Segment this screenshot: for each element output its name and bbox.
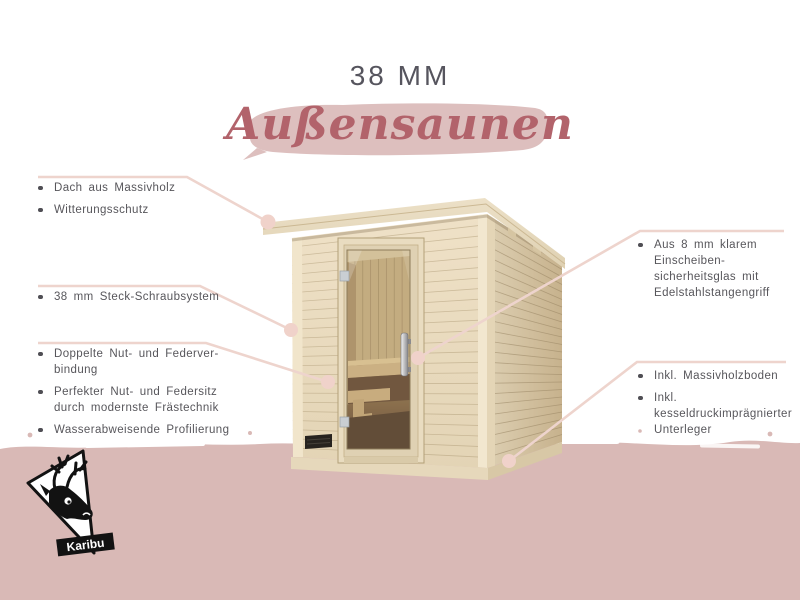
feature-item: Witterungsschutz bbox=[36, 202, 256, 218]
feature-group-joints: Doppelte Nut- und Federver- bindung Perf… bbox=[36, 346, 266, 444]
feature-item: Wasserabweisende Profilierung bbox=[36, 422, 266, 438]
callout-dot bbox=[261, 215, 276, 230]
feature-item: Doppelte Nut- und Federver- bindung bbox=[36, 346, 266, 378]
feature-list: Aus 8 mm klarem Einscheiben- sicherheits… bbox=[636, 237, 796, 301]
feature-group-system: 38 mm Steck-Schraubsystem bbox=[36, 289, 266, 311]
product-title: Außensaunen bbox=[0, 99, 800, 150]
karibu-logo: Karibu bbox=[15, 445, 125, 565]
feature-group-floor: Inkl. Massivholzboden Inkl. kesseldrucki… bbox=[636, 368, 796, 444]
feature-item: Dach aus Massivholz bbox=[36, 180, 256, 196]
karibu-wordmark: Karibu bbox=[56, 533, 115, 557]
feature-item: 38 mm Steck-Schraubsystem bbox=[36, 289, 266, 305]
feature-group-roof: Dach aus Massivholz Witterungsschutz bbox=[36, 180, 256, 224]
feature-list: Doppelte Nut- und Federver- bindung Perf… bbox=[36, 346, 266, 438]
feature-list: Dach aus Massivholz Witterungsschutz bbox=[36, 180, 256, 218]
callout-dot bbox=[284, 323, 298, 337]
feature-list: Inkl. Massivholzboden Inkl. kesseldrucki… bbox=[636, 368, 796, 438]
callout-dot bbox=[321, 375, 335, 389]
infographic-page: 38 MM Außensaunen bbox=[0, 0, 800, 600]
feature-list: 38 mm Steck-Schraubsystem bbox=[36, 289, 266, 305]
callout-dot bbox=[502, 454, 516, 468]
feature-item: Inkl. Massivholzboden bbox=[636, 368, 796, 384]
callout-dot bbox=[411, 351, 425, 365]
feature-item: Aus 8 mm klarem Einscheiben- sicherheits… bbox=[636, 237, 796, 301]
page-title: 38 MM bbox=[0, 60, 800, 92]
feature-group-glass: Aus 8 mm klarem Einscheiben- sicherheits… bbox=[636, 237, 796, 307]
feature-item: Inkl. kesseldruckimprägnierter Unterlege… bbox=[636, 390, 796, 438]
feature-item: Perfekter Nut- und Federsitz durch moder… bbox=[36, 384, 266, 416]
